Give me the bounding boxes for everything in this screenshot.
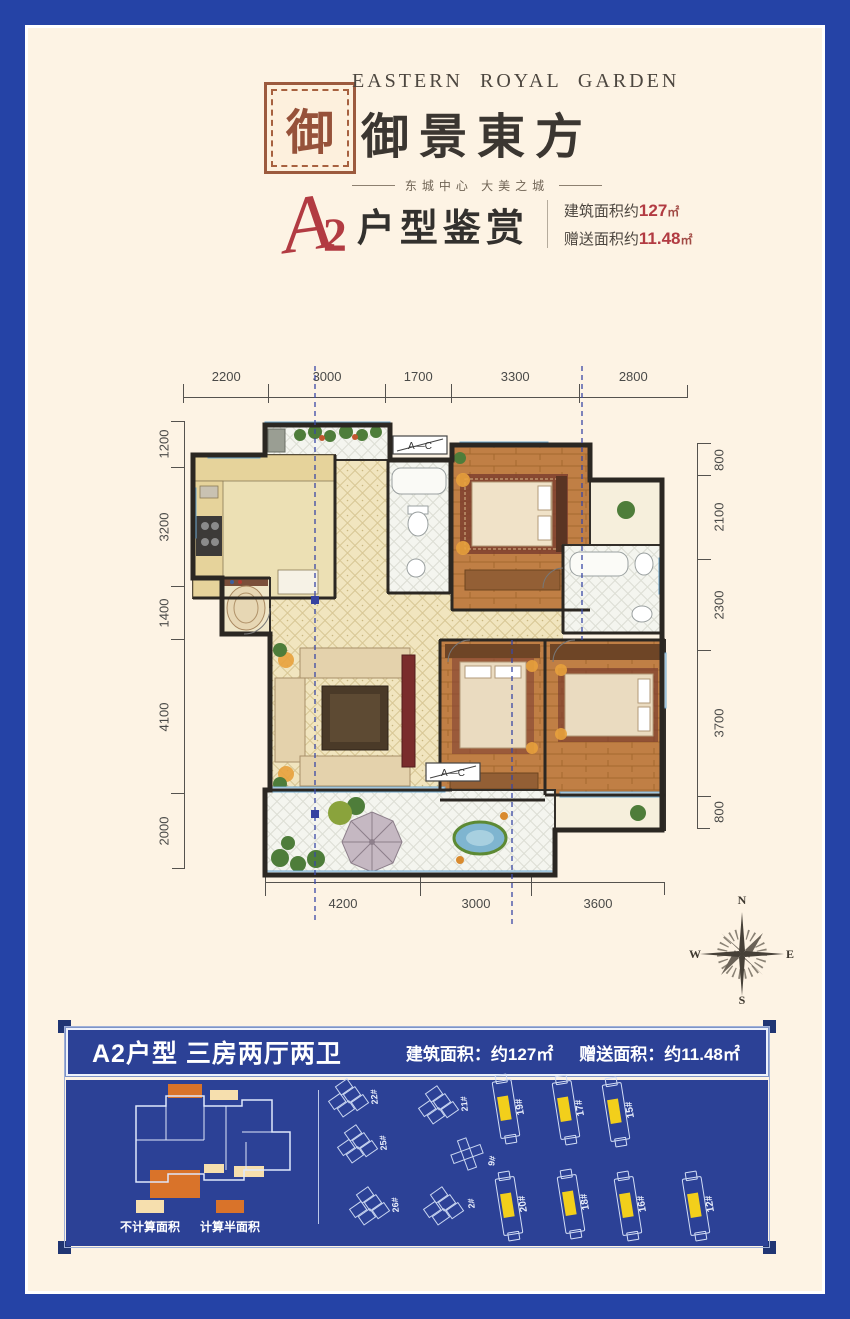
title-divider [547,200,548,248]
unit-title-text: 户型鉴赏 [357,197,529,252]
building-2#: 2# [418,1180,471,1232]
area-block: 建筑面积约127㎡ 赠送面积约11.48㎡ [564,200,693,249]
brand-name-chinese: 御景東方 [352,97,602,167]
building-22#: 22# [323,1072,376,1124]
dimension-segment: 2200 [183,384,268,398]
unit-title-row: A 2 户型鉴赏 建筑面积约127㎡ 赠送面积约11.48㎡ [282,186,693,262]
panel-title: A2户型 三房两厅两卫 [68,1034,342,1070]
floor-plan: A—C A—C [160,418,700,888]
building-25#: 25# [332,1118,385,1170]
dimension-segment: 3000 [268,384,384,398]
gift-area-line: 赠送面积约11.48㎡ [564,228,693,249]
ac-label-top: A—C [393,436,447,454]
poster-page: 御 EASTERN ROYAL GARDEN 御景東方 东城中心 大美之城 A … [0,0,850,1319]
panel-built-area: 建筑面积：约127㎡ [406,1040,553,1065]
panel-body: 不计算面积计算半面积 22#25#26#21#9#2#19#17#15#20#1… [66,1080,768,1246]
brand-seal-icon: 御 [264,82,356,174]
building-9#: 9# [446,1133,487,1174]
compass-s: S [739,993,746,1007]
brand-name-english: EASTERN ROYAL GARDEN [352,70,602,93]
sitemap-buildings: 22#25#26#21#9#2#19#17#15#20#18#16#12# [66,1080,768,1246]
building-12#: 12# [682,1176,711,1236]
dims-right: 800210023003700800 [697,443,731,829]
svg-text:A—C: A—C [408,441,432,452]
building-15#: 15# [602,1082,631,1142]
unit-letter: A [277,181,337,267]
compass-n: N [738,893,747,907]
seal-border: 御 [271,89,349,167]
dimension-segment: 1700 [385,384,451,398]
building-19#: 19# [492,1079,521,1139]
brand-block: EASTERN ROYAL GARDEN 御景東方 东城中心 大美之城 [352,70,602,194]
building-16#: 16# [614,1176,643,1236]
building-20#: 20# [495,1176,524,1236]
panel-gift-area: 赠送面积：约11.48㎡ [579,1040,740,1065]
ac-label-bottom: A—C [426,763,480,781]
dimension-segment: 2800 [579,384,687,398]
building-18#: 18# [557,1174,586,1234]
built-area-line: 建筑面积约127㎡ [564,200,693,221]
content: 御 EASTERN ROYAL GARDEN 御景東方 东城中心 大美之城 A … [0,0,850,1319]
compass-e: E [786,947,794,961]
seal-glyph: 御 [286,93,334,163]
building-26#: 26# [344,1180,397,1232]
unit-info-panel: A2户型 三房两厅两卫 建筑面积：约127㎡ 赠送面积：约11.48㎡ 不计算面… [60,1022,774,1252]
building-17#: 17# [552,1080,581,1140]
compass-w: W [689,947,701,961]
dims-top: 22003000170033002800 [183,366,688,398]
svg-text:A—C: A—C [441,768,465,779]
panel-header: A2户型 三房两厅两卫 建筑面积：约127㎡ 赠送面积：约11.48㎡ [66,1028,768,1076]
building-21#: 21# [413,1079,466,1131]
dimension-segment: 3300 [451,384,579,398]
panel-specs: 建筑面积：约127㎡ 赠送面积：约11.48㎡ [406,1040,740,1065]
compass-icon: N S W E [687,892,797,1007]
